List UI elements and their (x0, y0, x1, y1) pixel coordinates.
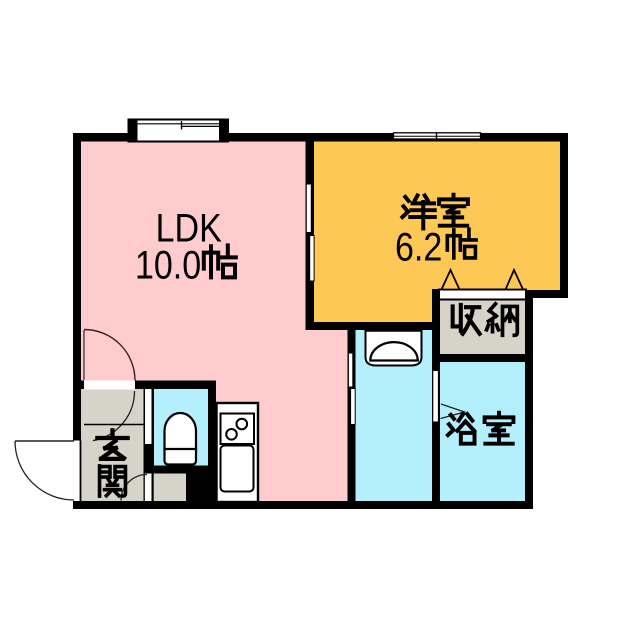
svg-text:10.0: 10.0 (135, 242, 201, 287)
svg-text:6.2: 6.2 (395, 224, 442, 269)
